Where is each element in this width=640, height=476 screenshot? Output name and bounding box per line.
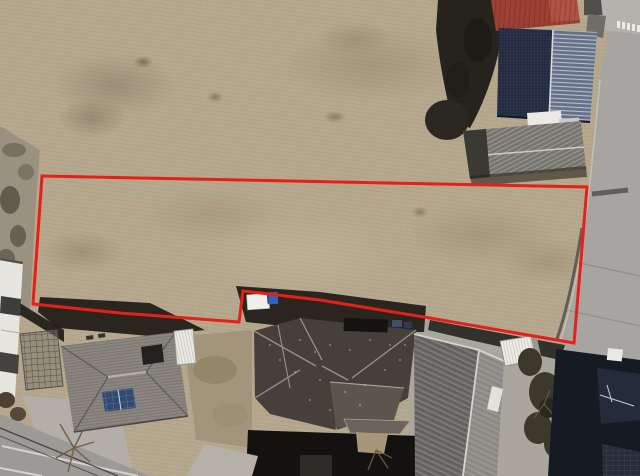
pergola-frame bbox=[20, 330, 63, 390]
trees-top-right bbox=[425, 0, 505, 140]
navy-metal-roof-building bbox=[497, 28, 597, 122]
far-right-house bbox=[548, 348, 640, 476]
roof-vent bbox=[86, 335, 93, 340]
left-house bbox=[61, 329, 196, 432]
white-shed-left-house bbox=[174, 329, 196, 365]
red-roof-building bbox=[491, 0, 580, 31]
white-rooftop-box bbox=[607, 348, 623, 362]
solar-panels bbox=[102, 388, 136, 412]
aerial-photo bbox=[0, 0, 640, 476]
rooftop-chimney bbox=[141, 344, 164, 365]
center-house bbox=[254, 318, 416, 430]
gray-metal-shed bbox=[463, 121, 587, 186]
roof-vent bbox=[98, 333, 105, 338]
white-apartment-building bbox=[0, 258, 23, 398]
